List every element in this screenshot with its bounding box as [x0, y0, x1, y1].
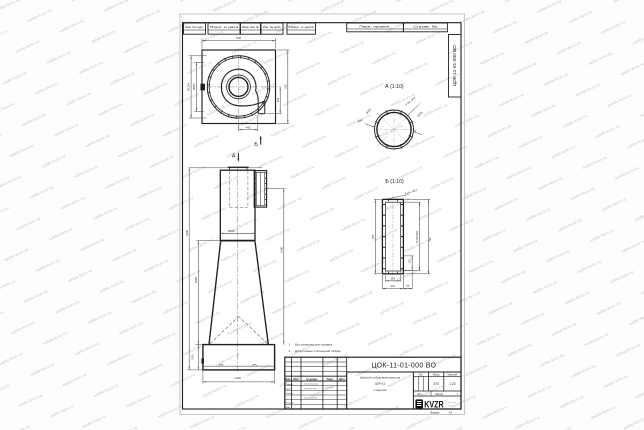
- svg-text:saldo-kvzr.ru: saldo-kvzr.ru: [609, 270, 635, 285]
- svg-text:saldo-kvzr.ru: saldo-kvzr.ru: [151, 331, 177, 346]
- svg-text:KVZR: KVZR: [424, 399, 444, 409]
- svg-text:saldo-kvzr.ru: saldo-kvzr.ru: [48, 227, 74, 242]
- svg-text:saldo-kvzr.ru: saldo-kvzr.ru: [0, 102, 16, 117]
- svg-text:550: 550: [191, 354, 195, 359]
- svg-text:Подп. и дата: Подп. и дата: [210, 25, 239, 29]
- svg-text:saldo-kvzr.ru: saldo-kvzr.ru: [632, 31, 644, 46]
- svg-text:saldo-kvzr.ru: saldo-kvzr.ru: [79, 237, 105, 252]
- svg-text:saldo-kvzr.ru: saldo-kvzr.ru: [0, 0, 21, 12]
- svg-text:saldo-kvzr.ru: saldo-kvzr.ru: [513, 238, 539, 253]
- svg-text:saldo-kvzr.ru: saldo-kvzr.ru: [135, 8, 161, 23]
- svg-text:saldo-kvzr.ru: saldo-kvzr.ru: [607, 93, 633, 108]
- svg-text:saldo-kvzr.ru: saldo-kvzr.ru: [9, 143, 35, 158]
- svg-text:saldo-kvzr.ru: saldo-kvzr.ru: [462, 186, 488, 201]
- svg-text:saldo-kvzr.ru: saldo-kvzr.ru: [0, 279, 17, 294]
- svg-text:Разраб.: Разраб.: [286, 384, 294, 386]
- svg-text:saldo-kvzr.ru: saldo-kvzr.ru: [551, 322, 577, 337]
- svg-text:saldo-kvzr.ru: saldo-kvzr.ru: [582, 155, 608, 170]
- svg-text:ЦОК-11-01-000 ВО: ЦОК-11-01-000 ВО: [452, 45, 458, 86]
- svg-text:saldo-kvzr.ru: saldo-kvzr.ru: [15, 39, 41, 54]
- svg-text:305: 305: [276, 97, 280, 102]
- svg-text:saldo-kvzr.ru: saldo-kvzr.ru: [589, 228, 615, 243]
- svg-text:saldo-kvzr.ru: saldo-kvzr.ru: [0, 29, 8, 44]
- svg-text:Допустимые отклонения ±10мм: Допустимые отклонения ±10мм: [295, 349, 340, 353]
- svg-text:saldo-kvzr.ru: saldo-kvzr.ru: [0, 310, 5, 325]
- svg-text:saldo-kvzr.ru: saldo-kvzr.ru: [104, 175, 130, 190]
- svg-text:saldo-kvzr.ru: saldo-kvzr.ru: [5, 425, 31, 430]
- svg-text:Циклон с обратным конусом: Циклон с обратным конусом: [360, 376, 400, 380]
- svg-text:saldo-kvzr.ru: saldo-kvzr.ru: [590, 405, 616, 420]
- svg-text:saldo-kvzr.ru: saldo-kvzr.ru: [42, 331, 68, 346]
- svg-text:Изм.: Изм.: [285, 378, 291, 381]
- svg-text:234: 234: [391, 284, 396, 288]
- svg-text:790: 790: [428, 237, 432, 242]
- svg-text:saldo-kvzr.ru: saldo-kvzr.ru: [34, 81, 60, 96]
- svg-text:saldo-kvzr.ru: saldo-kvzr.ru: [106, 352, 132, 367]
- svg-text:Масштаб: Масштаб: [447, 374, 458, 376]
- svg-text:Ø605: Ø605: [228, 229, 235, 233]
- svg-text:saldo-kvzr.ru: saldo-kvzr.ru: [288, 0, 314, 3]
- svg-text:saldo-kvzr.ru: saldo-kvzr.ru: [81, 414, 107, 429]
- svg-text:saldo-kvzr.ru: saldo-kvzr.ru: [131, 289, 157, 304]
- svg-text:saldo-kvzr.ru: saldo-kvzr.ru: [576, 259, 602, 274]
- svg-text:4480: 4480: [185, 229, 189, 236]
- svg-text:saldo-kvzr.ru: saldo-kvzr.ru: [143, 258, 169, 273]
- svg-text:saldo-kvzr.ru: saldo-kvzr.ru: [479, 51, 505, 66]
- svg-text:saldo-kvzr.ru: saldo-kvzr.ru: [103, 0, 129, 13]
- svg-text:saldo-kvzr.ru: saldo-kvzr.ru: [474, 155, 500, 170]
- svg-text:saldo-kvzr.ru: saldo-kvzr.ru: [468, 259, 494, 274]
- svg-text:Подп. и дата: Подп. и дата: [289, 25, 315, 29]
- svg-text:saldo-kvzr.ru: saldo-kvzr.ru: [93, 383, 119, 398]
- svg-text:с кожухом: с кожухом: [373, 388, 386, 392]
- svg-text:saldo-kvzr.ru: saldo-kvzr.ru: [91, 29, 117, 44]
- svg-text:saldo-kvzr.ru: saldo-kvzr.ru: [628, 311, 644, 326]
- svg-text:saldo-kvzr.ru: saldo-kvzr.ru: [71, 0, 97, 2]
- svg-text:saldo-kvzr.ru: saldo-kvzr.ru: [2, 71, 28, 86]
- svg-text:saldo-kvzr.ru: saldo-kvzr.ru: [587, 51, 613, 66]
- svg-text:saldo-kvzr.ru: saldo-kvzr.ru: [532, 280, 558, 295]
- svg-text:saldo-kvzr.ru: saldo-kvzr.ru: [112, 248, 138, 263]
- svg-text:442: 442: [246, 125, 251, 129]
- svg-text:saldo-kvzr.ru: saldo-kvzr.ru: [123, 39, 149, 54]
- svg-text:saldo-kvzr.ru: saldo-kvzr.ru: [129, 113, 155, 128]
- svg-text:saldo-kvzr.ru: saldo-kvzr.ru: [18, 393, 44, 408]
- svg-text:Инв. № подл.: Инв. № подл.: [185, 25, 204, 29]
- svg-text:Все размеры для справок.: Все размеры для справок.: [295, 343, 333, 347]
- svg-text:3140: 3140: [279, 246, 283, 253]
- svg-text:saldo-kvzr.ru: saldo-kvzr.ru: [539, 353, 565, 368]
- svg-text:saldo-kvzr.ru: saldo-kvzr.ru: [157, 404, 183, 419]
- svg-text:saldo-kvzr.ru: saldo-kvzr.ru: [62, 372, 88, 387]
- svg-text:540: 540: [236, 36, 241, 40]
- svg-text:А3: А3: [449, 410, 453, 414]
- svg-text:saldo-kvzr.ru: saldo-kvzr.ru: [568, 10, 594, 25]
- svg-text:saldo-kvzr.ru: saldo-kvzr.ru: [110, 71, 136, 86]
- svg-text:saldo-kvzr.ru: saldo-kvzr.ru: [559, 394, 585, 409]
- svg-text:saldo-kvzr.ru: saldo-kvzr.ru: [526, 384, 552, 399]
- svg-text:saldo-kvzr.ru: saldo-kvzr.ru: [118, 321, 144, 336]
- svg-text:saldo-kvzr.ru: saldo-kvzr.ru: [635, 384, 644, 399]
- svg-text:saldo-kvzr.ru: saldo-kvzr.ru: [438, 426, 464, 430]
- svg-text:saldo-kvzr.ru: saldo-kvzr.ru: [639, 103, 644, 118]
- svg-text:saldo-kvzr.ru: saldo-kvzr.ru: [600, 20, 626, 35]
- svg-text:saldo-kvzr.ru: saldo-kvzr.ru: [570, 186, 596, 201]
- svg-text:saldo-kvzr.ru: saldo-kvzr.ru: [504, 0, 530, 3]
- svg-text:Взам. инв. №: Взам. инв. №: [242, 25, 259, 29]
- svg-text:saldo-kvzr.ru: saldo-kvzr.ru: [525, 207, 551, 222]
- svg-text:saldo-kvzr.ru: saldo-kvzr.ru: [556, 41, 582, 56]
- svg-text:saldo-kvzr.ru: saldo-kvzr.ru: [87, 310, 113, 325]
- svg-text:№ докум.: № докум.: [306, 378, 318, 381]
- svg-text:saldo-kvzr.ru: saldo-kvzr.ru: [221, 425, 247, 430]
- svg-text:saldo-kvzr.ru: saldo-kvzr.ru: [67, 268, 93, 283]
- svg-text:saldo-kvzr.ru: saldo-kvzr.ru: [506, 165, 532, 180]
- svg-text:saldo-kvzr.ru: saldo-kvzr.ru: [524, 30, 550, 45]
- svg-text:saldo-kvzr.ru: saldo-kvzr.ru: [298, 415, 324, 430]
- svg-text:saldo-kvzr.ru: saldo-kvzr.ru: [487, 124, 513, 139]
- svg-text:saldo-kvzr.ru: saldo-kvzr.ru: [575, 82, 601, 97]
- svg-text:сделано в: сделано в: [447, 402, 456, 404]
- svg-text:saldo-kvzr.ru: saldo-kvzr.ru: [113, 425, 139, 430]
- svg-text:saldo-kvzr.ru: saldo-kvzr.ru: [615, 343, 641, 358]
- svg-text:saldo-kvzr.ru: saldo-kvzr.ru: [149, 154, 175, 169]
- svg-text:saldo-kvzr.ru: saldo-kvzr.ru: [537, 0, 563, 14]
- svg-text:Лит.: Лит.: [419, 374, 424, 376]
- svg-text:2: 2: [289, 349, 291, 353]
- svg-text:1:20: 1:20: [449, 382, 455, 386]
- svg-text:saldo-kvzr.ru: saldo-kvzr.ru: [4, 247, 30, 262]
- svg-text:saldo-kvzr.ru: saldo-kvzr.ru: [492, 20, 518, 35]
- svg-text:saldo-kvzr.ru: saldo-kvzr.ru: [634, 207, 644, 222]
- svg-text:ЦОК-11: ЦОК-11: [375, 381, 386, 385]
- svg-text:saldo-kvzr.ru: saldo-kvzr.ru: [46, 50, 72, 65]
- svg-text:Перв. примен.: Перв. примен.: [359, 25, 391, 29]
- svg-text:saldo-kvzr.ru: saldo-kvzr.ru: [595, 124, 621, 139]
- svg-text:saldo-kvzr.ru: saldo-kvzr.ru: [499, 93, 525, 108]
- svg-text:Листов: Листов: [435, 394, 443, 396]
- svg-text:Т.контр.: Т.контр.: [286, 393, 294, 395]
- svg-text:saldo-kvzr.ru: saldo-kvzr.ru: [99, 279, 125, 294]
- svg-text:saldo-kvzr.ru: saldo-kvzr.ru: [54, 123, 80, 138]
- svg-text:Подп.: Подп.: [327, 378, 334, 381]
- svg-text:Утв.: Утв.: [286, 407, 291, 409]
- svg-text:saldo-kvzr.ru: saldo-kvzr.ru: [428, 0, 454, 13]
- svg-text:saldo-kvzr.ru: saldo-kvzr.ru: [537, 176, 563, 191]
- svg-text:saldo-kvzr.ru: saldo-kvzr.ru: [531, 103, 557, 118]
- svg-text:saldo-kvzr.ru: saldo-kvzr.ru: [623, 415, 644, 430]
- svg-text:Пров.: Пров.: [286, 389, 292, 391]
- svg-text:saldo-kvzr.ru: saldo-kvzr.ru: [557, 218, 583, 233]
- svg-text:saldo-kvzr.ru: saldo-kvzr.ru: [98, 102, 124, 117]
- svg-text:saldo-kvzr.ru: saldo-kvzr.ru: [518, 134, 544, 149]
- svg-text:saldo-kvzr.ru: saldo-kvzr.ru: [138, 362, 164, 377]
- svg-text:saldo-kvzr.ru: saldo-kvzr.ru: [463, 363, 489, 378]
- svg-text:saldo-kvzr.ru: saldo-kvzr.ru: [117, 144, 143, 159]
- svg-text:saldo-kvzr.ru: saldo-kvzr.ru: [571, 364, 597, 379]
- svg-text:Н.контр.: Н.контр.: [286, 403, 295, 405]
- svg-text:saldo-kvzr.ru: saldo-kvzr.ru: [30, 362, 56, 377]
- svg-text:125: 125: [409, 259, 412, 264]
- svg-text:saldo-kvzr.ru: saldo-kvzr.ru: [0, 351, 24, 366]
- svg-text:saldo-kvzr.ru: saldo-kvzr.ru: [512, 61, 538, 76]
- svg-text:saldo-kvzr.ru: saldo-kvzr.ru: [596, 301, 622, 316]
- svg-text:Дата: Дата: [339, 378, 345, 381]
- svg-text:А (1:10): А (1:10): [385, 84, 404, 90]
- svg-text:saldo-kvzr.ru: saldo-kvzr.ru: [41, 154, 67, 169]
- svg-text:saldo-kvzr.ru: saldo-kvzr.ru: [79, 60, 105, 75]
- svg-text:saldo-kvzr.ru: saldo-kvzr.ru: [545, 249, 571, 264]
- svg-text:saldo-kvzr.ru: saldo-kvzr.ru: [0, 383, 11, 398]
- svg-text:saldo-kvzr.ru: saldo-kvzr.ru: [550, 145, 576, 160]
- svg-text:saldo-kvzr.ru: saldo-kvzr.ru: [137, 185, 163, 200]
- svg-text:saldo-kvzr.ru: saldo-kvzr.ru: [476, 332, 502, 347]
- svg-text:saldo-kvzr.ru: saldo-kvzr.ru: [495, 374, 521, 389]
- svg-text:saldo-kvzr.ru: saldo-kvzr.ru: [406, 415, 432, 430]
- svg-text:saldo-kvzr.ru: saldo-kvzr.ru: [614, 166, 640, 181]
- svg-text:ЦОК-11-01-000 ВО: ЦОК-11-01-000 ВО: [371, 362, 436, 369]
- svg-text:saldo-kvzr.ru: saldo-kvzr.ru: [16, 216, 42, 231]
- svg-text:Ø905: Ø905: [192, 83, 196, 90]
- svg-text:saldo-kvzr.ru: saldo-kvzr.ru: [488, 301, 514, 316]
- svg-text:saldo-kvzr.ru: saldo-kvzr.ru: [55, 300, 81, 315]
- svg-text:saldo-kvzr.ru: saldo-kvzr.ru: [612, 0, 638, 4]
- svg-text:saldo-kvzr.ru: saldo-kvzr.ru: [23, 289, 49, 304]
- svg-text:saldo-kvzr.ru: saldo-kvzr.ru: [179, 0, 205, 3]
- svg-text:saldo-kvzr.ru: saldo-kvzr.ru: [514, 415, 540, 430]
- svg-text:saldo-kvzr.ru: saldo-kvzr.ru: [564, 290, 590, 305]
- svg-text:saldo-kvzr.ru: saldo-kvzr.ru: [396, 0, 422, 3]
- svg-text:saldo-kvzr.ru: saldo-kvzr.ru: [60, 196, 86, 211]
- svg-text:saldo-kvzr.ru: saldo-kvzr.ru: [584, 332, 610, 347]
- svg-text:saldo-kvzr.ru: saldo-kvzr.ru: [601, 197, 627, 212]
- svg-text:saldo-kvzr.ru: saldo-kvzr.ru: [520, 311, 546, 326]
- svg-text:Справ. №: Справ. №: [413, 25, 437, 29]
- svg-text:Б: Б: [254, 142, 258, 148]
- svg-text:saldo-kvzr.ru: saldo-kvzr.ru: [10, 320, 36, 335]
- svg-text:saldo-kvzr.ru: saldo-kvzr.ru: [620, 62, 644, 77]
- svg-text:saldo-kvzr.ru: saldo-kvzr.ru: [329, 425, 355, 430]
- svg-text:saldo-kvzr.ru: saldo-kvzr.ru: [467, 82, 493, 97]
- svg-text:А: А: [232, 153, 236, 159]
- svg-text:saldo-kvzr.ru: saldo-kvzr.ru: [142, 81, 168, 96]
- svg-text:saldo-kvzr.ru: saldo-kvzr.ru: [621, 239, 644, 254]
- svg-text:saldo-kvzr.ru: saldo-kvzr.ru: [66, 92, 92, 107]
- svg-text:saldo-kvzr.ru: saldo-kvzr.ru: [124, 217, 150, 232]
- svg-text:saldo-kvzr.ru: saldo-kvzr.ru: [0, 175, 22, 190]
- svg-text:saldo-kvzr.ru: saldo-kvzr.ru: [21, 112, 47, 127]
- svg-text:saldo-kvzr.ru: saldo-kvzr.ru: [482, 405, 508, 420]
- svg-text:5х125=625: 5х125=625: [416, 230, 419, 243]
- svg-text:saldo-kvzr.ru: saldo-kvzr.ru: [156, 227, 182, 242]
- svg-text:saldo-kvzr.ru: saldo-kvzr.ru: [603, 374, 629, 389]
- svg-text:kvzr.ru: kvzr.ru: [449, 405, 455, 407]
- svg-text:saldo-kvzr.ru: saldo-kvzr.ru: [190, 414, 216, 429]
- svg-text:180: 180: [391, 277, 396, 281]
- svg-text:saldo-kvzr.ru: saldo-kvzr.ru: [27, 8, 53, 23]
- svg-text:saldo-kvzr.ru: saldo-kvzr.ru: [626, 135, 644, 150]
- svg-text:saldo-kvzr.ru: saldo-kvzr.ru: [35, 258, 61, 273]
- svg-text:saldo-kvzr.ru: saldo-kvzr.ru: [73, 164, 99, 179]
- svg-text:saldo-kvzr.ru: saldo-kvzr.ru: [507, 343, 533, 358]
- svg-text:saldo-kvzr.ru: saldo-kvzr.ru: [212, 0, 238, 13]
- svg-text:528: 528: [283, 84, 287, 89]
- svg-text:saldo-kvzr.ru: saldo-kvzr.ru: [85, 133, 111, 148]
- svg-text:saldo-kvzr.ru: saldo-kvzr.ru: [59, 18, 85, 33]
- svg-text:saldo-kvzr.ru: saldo-kvzr.ru: [29, 185, 55, 200]
- svg-text:Б (1:10): Б (1:10): [385, 179, 404, 185]
- svg-text:saldo-kvzr.ru: saldo-kvzr.ru: [0, 206, 10, 221]
- svg-text:saldo-kvzr.ru: saldo-kvzr.ru: [562, 114, 588, 129]
- svg-text:saldo-kvzr.ru: saldo-kvzr.ru: [640, 280, 644, 295]
- svg-text:saldo-kvzr.ru: saldo-kvzr.ru: [320, 0, 346, 13]
- svg-text:370: 370: [434, 382, 440, 386]
- svg-text:saldo-kvzr.ru: saldo-kvzr.ru: [500, 269, 526, 284]
- svg-text:Ø1204: Ø1204: [187, 83, 191, 91]
- svg-text:saldo-kvzr.ru: saldo-kvzr.ru: [126, 393, 152, 408]
- svg-text:1: 1: [289, 343, 291, 347]
- svg-text:Инв. № дубл.: Инв. № дубл.: [263, 25, 282, 29]
- svg-text:saldo-kvzr.ru: saldo-kvzr.ru: [74, 341, 100, 356]
- svg-text:saldo-kvzr.ru: saldo-kvzr.ru: [49, 404, 75, 419]
- svg-text:1440: 1440: [234, 376, 241, 380]
- svg-text:saldo-kvzr.ru: saldo-kvzr.ru: [493, 197, 519, 212]
- svg-text:saldo-kvzr.ru: saldo-kvzr.ru: [0, 133, 3, 148]
- svg-text:Масса: Масса: [433, 374, 441, 376]
- svg-text:Лист: Лист: [293, 378, 299, 381]
- svg-text:saldo-kvzr.ru: saldo-kvzr.ru: [154, 50, 180, 65]
- svg-text:saldo-kvzr.ru: saldo-kvzr.ru: [481, 228, 507, 243]
- svg-text:saldo-kvzr.ru: saldo-kvzr.ru: [92, 206, 118, 221]
- svg-text:2985: 2985: [194, 276, 198, 283]
- svg-text:saldo-kvzr.ru: saldo-kvzr.ru: [543, 72, 569, 87]
- svg-text:saldo-kvzr.ru: saldo-kvzr.ru: [546, 426, 572, 430]
- svg-text:695: 695: [371, 234, 375, 239]
- svg-text:Формат: Формат: [430, 410, 440, 414]
